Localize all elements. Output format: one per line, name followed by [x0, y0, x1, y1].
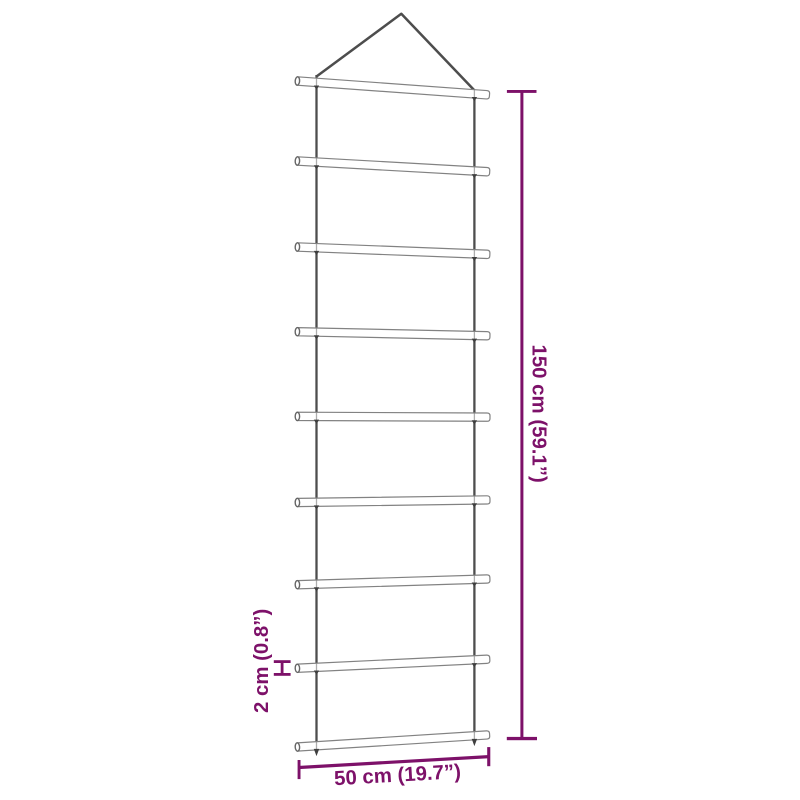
- svg-text:150 cm (59.1”): 150 cm (59.1”): [527, 345, 549, 483]
- svg-text:2 cm (0.8”): 2 cm (0.8”): [251, 609, 273, 713]
